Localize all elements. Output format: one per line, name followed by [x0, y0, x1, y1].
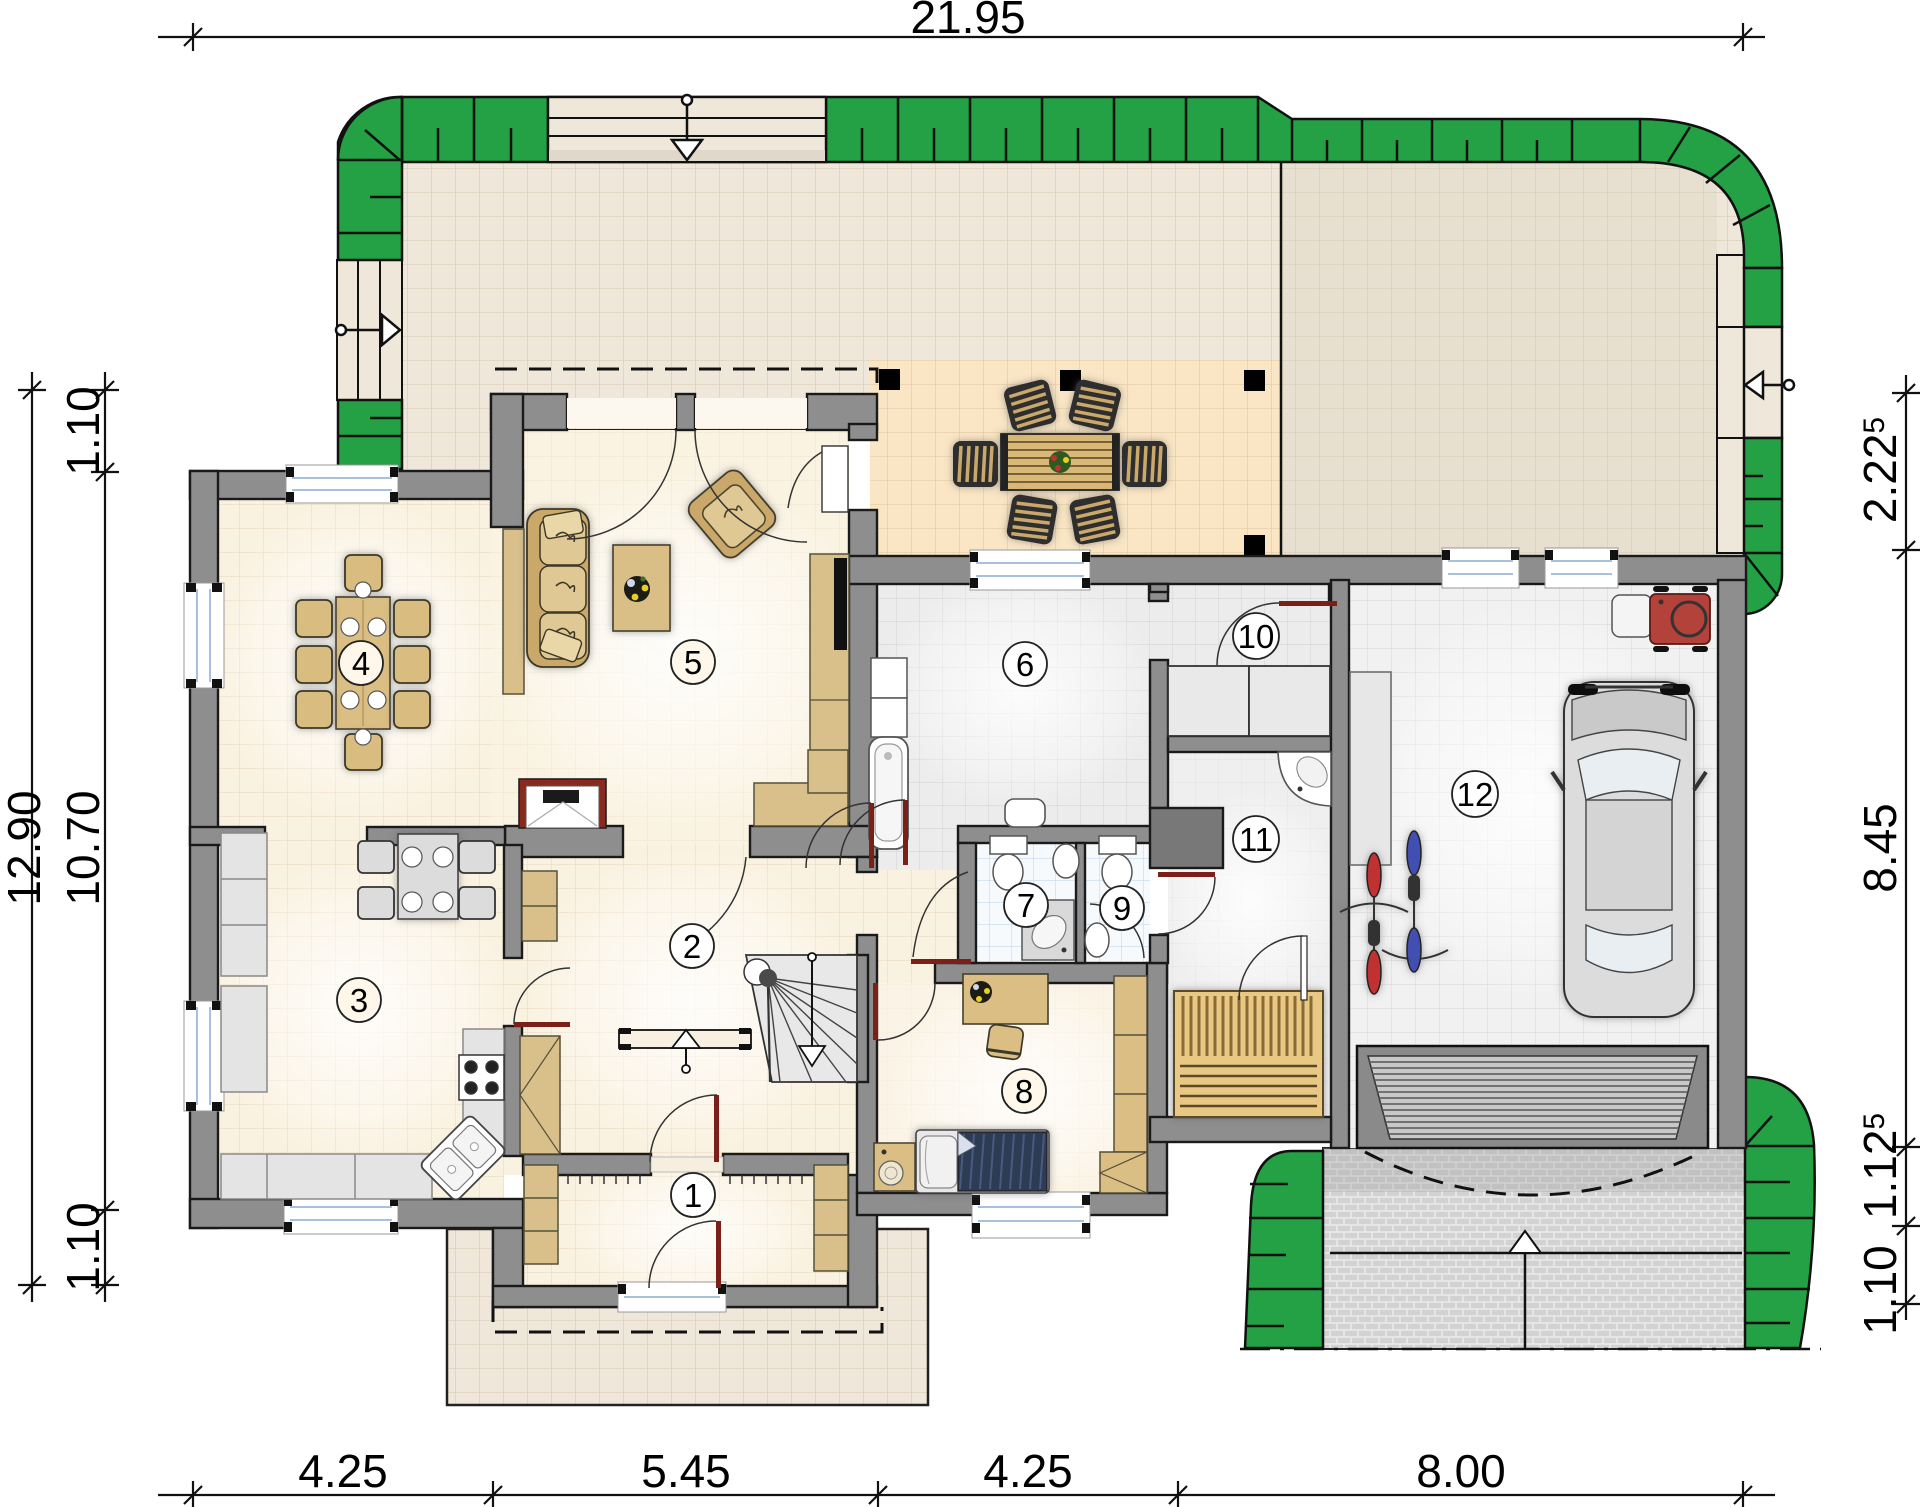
svg-text:21.95: 21.95	[910, 0, 1025, 43]
svg-text:3: 3	[350, 982, 368, 1019]
svg-text:4: 4	[352, 645, 370, 682]
svg-text:1: 1	[684, 1177, 702, 1214]
svg-text:4.25: 4.25	[983, 1445, 1073, 1497]
svg-text:7: 7	[1017, 887, 1035, 924]
svg-text:1.10: 1.10	[1854, 1245, 1906, 1335]
svg-text:8.45: 8.45	[1854, 803, 1906, 893]
svg-text:1.10: 1.10	[57, 1202, 109, 1292]
svg-text:5.45: 5.45	[641, 1445, 731, 1497]
svg-text:10: 10	[1238, 618, 1275, 655]
svg-text:9: 9	[1113, 890, 1131, 927]
svg-text:8.00: 8.00	[1416, 1445, 1506, 1497]
svg-text:12.90: 12.90	[0, 790, 50, 905]
svg-text:11: 11	[1239, 821, 1273, 858]
svg-text:5: 5	[684, 644, 702, 681]
svg-text:6: 6	[1016, 646, 1034, 683]
svg-text:4.25: 4.25	[298, 1445, 388, 1497]
svg-text:1.10: 1.10	[57, 386, 109, 476]
svg-text:8: 8	[1015, 1073, 1033, 1110]
svg-text:2: 2	[683, 928, 701, 965]
svg-text:10.70: 10.70	[57, 790, 109, 905]
svg-text:12: 12	[1457, 776, 1494, 813]
